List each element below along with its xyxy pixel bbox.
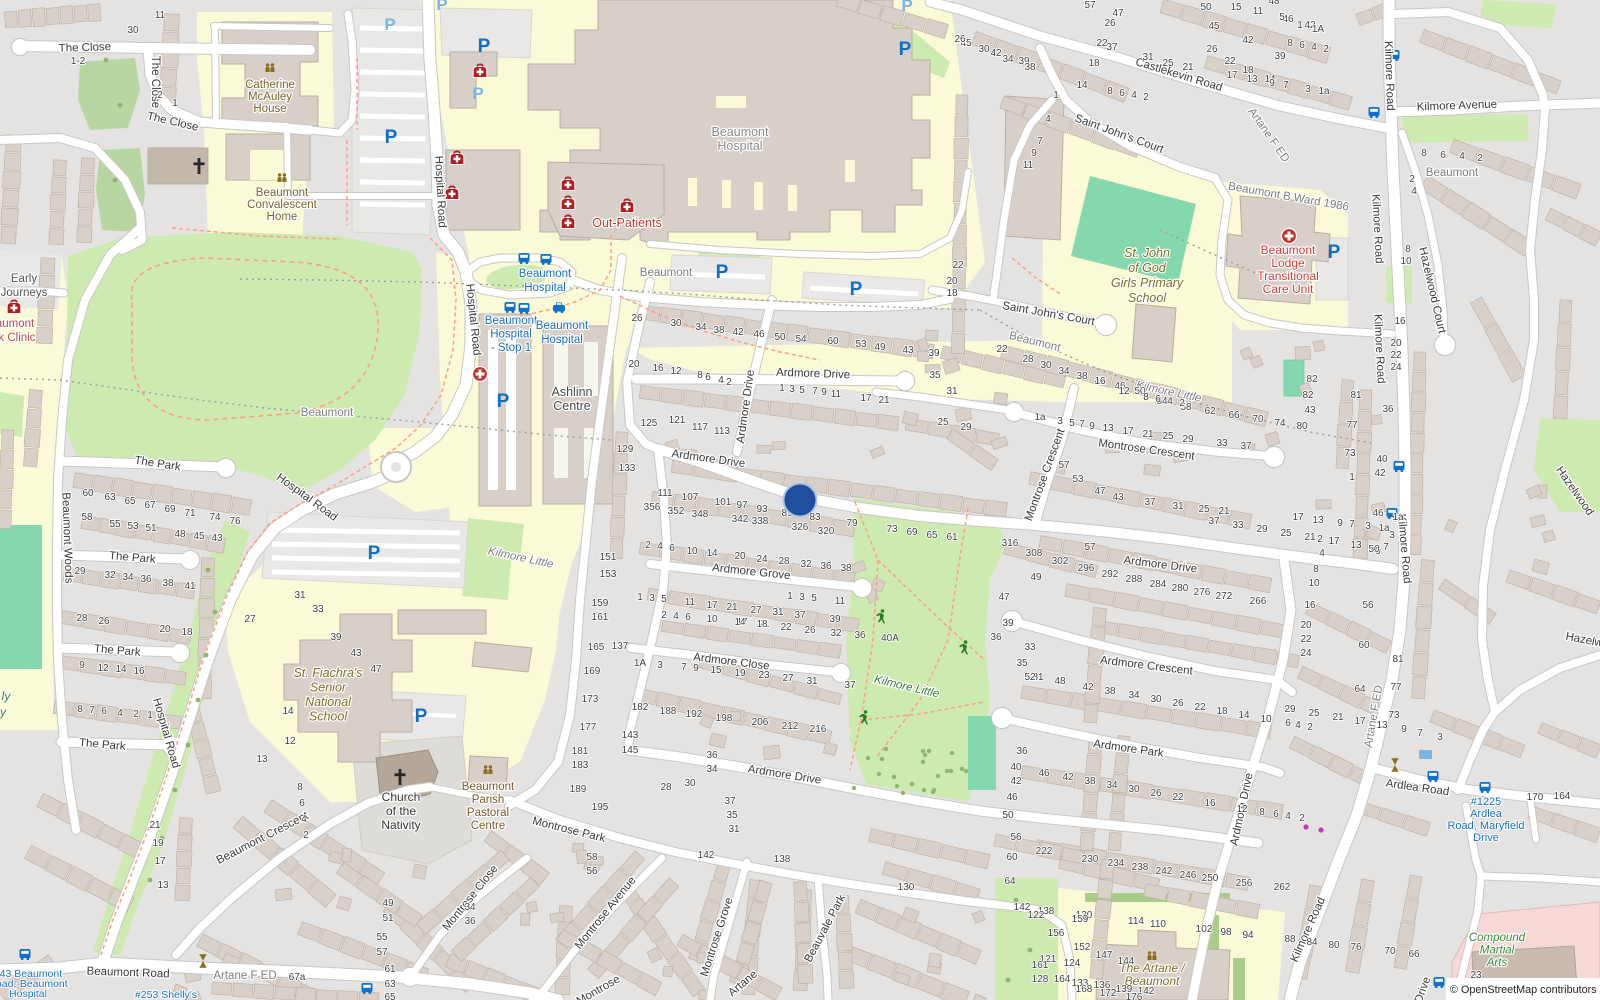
svg-text:47: 47 [1094,486,1106,497]
svg-text:17: 17 [1354,716,1366,727]
svg-text:16: 16 [1394,316,1406,327]
svg-text:34: 34 [1128,690,1140,701]
svg-text:8: 8 [1313,564,1319,575]
svg-text:Road, Maryfield: Road, Maryfield [1447,820,1524,832]
svg-text:11: 11 [835,596,846,607]
svg-text:6: 6 [299,798,305,809]
svg-text:26: 26 [954,34,966,45]
svg-text:45: 45 [193,531,205,542]
svg-text:192: 192 [686,709,703,720]
svg-text:188: 188 [660,706,677,717]
svg-text:16: 16 [1204,798,1216,809]
svg-text:The Close: The Close [58,41,111,55]
svg-text:22: 22 [780,622,792,633]
svg-text:183: 183 [572,760,589,771]
svg-text:1: 1 [1297,20,1303,31]
svg-text:36: 36 [820,561,832,572]
svg-text:37: 37 [1208,516,1220,527]
svg-text:39: 39 [928,348,940,359]
svg-text:26: 26 [1104,18,1116,29]
svg-text:181: 181 [572,746,589,757]
svg-text:21: 21 [1304,532,1316,543]
svg-text:10: 10 [1400,256,1412,267]
svg-text:1: 1 [172,98,178,109]
svg-text:© OpenStreetMap contributors: © OpenStreetMap contributors [1450,984,1597,996]
svg-text:1a: 1a [1392,512,1404,523]
svg-text:38: 38 [1104,686,1116,697]
svg-text:8: 8 [1405,244,1411,255]
svg-text:1A: 1A [634,658,647,669]
svg-text:Hospital: Hospital [9,988,47,1000]
svg-text:31: 31 [1172,501,1184,512]
svg-text:42: 42 [1082,682,1094,693]
svg-text:34: 34 [1058,366,1070,377]
svg-text:4: 4 [657,541,663,552]
svg-text:272: 272 [1216,591,1233,602]
svg-text:Lodge: Lodge [1271,256,1305,270]
svg-text:164: 164 [1054,974,1071,985]
svg-text:Beaumont: Beaumont [640,267,693,279]
svg-text:18: 18 [946,288,958,299]
svg-text:National: National [305,695,352,709]
svg-text:43: 43 [1112,492,1124,503]
svg-text:97: 97 [736,500,748,511]
svg-text:38: 38 [713,325,725,336]
svg-text:73: 73 [886,524,898,535]
svg-text:P: P [899,39,912,60]
svg-text:38: 38 [162,578,174,589]
svg-text:80: 80 [1328,940,1340,951]
svg-text:33: 33 [1216,438,1228,449]
svg-text:38: 38 [840,563,852,574]
svg-text:P: P [497,391,510,412]
svg-text:238: 238 [1132,862,1149,873]
svg-text:5: 5 [811,593,817,604]
svg-text:43: 43 [211,533,223,544]
svg-text:21: 21 [1182,62,1194,73]
svg-text:13: 13 [1312,515,1324,526]
svg-text:Church: Church [382,790,421,804]
svg-text:Drive: Drive [1473,832,1499,844]
svg-text:338: 338 [752,516,769,527]
svg-text:22: 22 [952,260,964,271]
svg-text:125: 125 [641,418,658,429]
svg-text:40A: 40A [881,633,899,644]
svg-text:81: 81 [1350,390,1362,401]
svg-text:3: 3 [1305,84,1311,95]
svg-text:Nativity: Nativity [381,818,420,832]
svg-text:206: 206 [752,717,769,728]
svg-text:50: 50 [1002,810,1014,821]
svg-text:54: 54 [795,334,807,345]
svg-text:51: 51 [145,523,157,534]
svg-text:P: P [1328,242,1341,263]
svg-text:69: 69 [164,504,176,515]
svg-text:22: 22 [1194,702,1206,713]
svg-text:12: 12 [1236,804,1248,815]
svg-text:33: 33 [1024,642,1036,653]
svg-text:1: 1 [147,710,153,721]
svg-text:34: 34 [706,764,718,775]
svg-text:Hospital: Hospital [490,329,532,341]
svg-text:80: 80 [1296,421,1308,432]
svg-text:Beaumont: Beaumont [256,187,309,199]
svg-text:of the: of the [386,804,416,818]
svg-text:Ardlea: Ardlea [1470,808,1503,820]
svg-text:2: 2 [645,540,651,551]
svg-text:37: 37 [724,796,736,807]
svg-text:8: 8 [297,782,303,793]
svg-text:4: 4 [718,375,724,386]
svg-text:1a: 1a [1318,86,1330,97]
svg-text:10: 10 [706,614,718,625]
svg-text:P: P [478,36,491,57]
svg-text:- Stop 1: - Stop 1 [491,342,531,354]
svg-text:84: 84 [1306,937,1318,948]
svg-text:31: 31 [772,607,784,618]
svg-text:11: 11 [831,389,842,400]
svg-text:28: 28 [76,613,88,624]
svg-text:14: 14 [1238,710,1250,721]
svg-text:5: 5 [1069,418,1075,429]
svg-text:3: 3 [1437,732,1443,743]
svg-text:1: 1 [779,383,785,394]
svg-text:133: 133 [619,463,636,474]
svg-text:13: 13 [157,880,169,891]
svg-text:26: 26 [631,313,643,324]
svg-text:Beaumont: Beaumont [519,268,572,280]
svg-text:6: 6 [1155,394,1161,405]
svg-text:94: 94 [1242,930,1254,941]
svg-text:2: 2 [1307,722,1313,733]
svg-text:292: 292 [1102,569,1119,580]
svg-text:216: 216 [810,724,827,735]
svg-text:26: 26 [1172,698,1184,709]
svg-text:Hospital: Hospital [524,282,566,294]
svg-text:356: 356 [644,502,661,513]
svg-text:57: 57 [1084,0,1096,11]
svg-text:8: 8 [1143,392,1149,403]
svg-text:P: P [415,706,428,727]
svg-text:53: 53 [855,339,867,350]
svg-text:22: 22 [1300,634,1312,645]
svg-text:14: 14 [734,617,746,628]
svg-text:39: 39 [330,632,342,643]
svg-text:1-2: 1-2 [71,56,86,67]
svg-text:6: 6 [1285,718,1291,729]
svg-text:8: 8 [1259,807,1265,818]
svg-text:15: 15 [1230,2,1242,13]
svg-text:#1225: #1225 [1471,796,1502,808]
svg-text:246: 246 [1180,870,1197,881]
svg-text:159: 159 [592,598,609,609]
svg-text:64: 64 [1354,684,1366,695]
svg-text:32: 32 [800,559,812,570]
svg-text:Pastoral: Pastoral [467,807,509,819]
svg-text:7: 7 [681,662,687,673]
svg-text:6: 6 [1119,88,1125,99]
svg-text:320: 320 [818,526,835,537]
svg-text:11: 11 [1023,160,1034,171]
svg-text:20: 20 [628,359,640,370]
svg-text:74: 74 [1274,418,1286,429]
svg-text:177: 177 [580,722,597,733]
svg-text:36: 36 [854,630,866,641]
svg-text:37: 37 [794,610,806,621]
svg-text:12: 12 [1118,386,1130,397]
svg-text:76: 76 [1350,942,1362,953]
svg-text:77: 77 [1390,682,1402,693]
svg-text:4: 4 [1131,90,1137,101]
svg-text:30: 30 [978,44,990,55]
svg-text:38: 38 [1076,371,1088,382]
svg-text:2: 2 [1143,92,1149,103]
svg-text:36: 36 [990,632,1002,643]
svg-text:284: 284 [1150,579,1167,590]
svg-text:20: 20 [159,624,171,635]
svg-text:Beaumont: Beaumont [536,320,589,332]
svg-text:13: 13 [1376,720,1388,731]
svg-text:5: 5 [1279,12,1285,23]
svg-text:256: 256 [1236,878,1253,889]
svg-text:18: 18 [181,627,193,638]
svg-text:70: 70 [1252,414,1264,425]
svg-text:31: 31 [1142,52,1154,63]
svg-text:57: 57 [376,947,388,958]
svg-text:Martial: Martial [1480,945,1515,957]
svg-text:28: 28 [660,782,672,793]
svg-text:22: 22 [1390,350,1402,361]
svg-text:11: 11 [155,10,166,21]
svg-text:3: 3 [799,592,805,603]
svg-text:12: 12 [284,736,296,747]
svg-text:9: 9 [693,663,699,674]
svg-text:6: 6 [1273,809,1279,820]
svg-text:37: 37 [844,680,856,691]
svg-text:28: 28 [778,556,790,567]
svg-text:6: 6 [685,612,691,623]
svg-text:29: 29 [1284,704,1296,715]
svg-text:326: 326 [792,522,809,533]
svg-text:77: 77 [1346,420,1358,431]
svg-text:4: 4 [1045,114,1051,125]
svg-text:52: 52 [1024,672,1036,683]
svg-text:21: 21 [149,820,161,831]
svg-text:9: 9 [79,660,85,671]
svg-text:16: 16 [1094,376,1106,387]
svg-text:1: 1 [787,591,793,602]
svg-text:34: 34 [695,322,707,333]
svg-text:60: 60 [827,336,839,347]
svg-text:48: 48 [1054,676,1066,687]
svg-text:10: 10 [1308,578,1320,589]
svg-text:3: 3 [1389,530,1395,541]
svg-text:7: 7 [1283,80,1289,91]
svg-text:4: 4 [673,611,679,622]
svg-text:110: 110 [1150,919,1166,930]
svg-text:159: 159 [1072,914,1089,925]
svg-text:53: 53 [127,521,139,532]
svg-text:7: 7 [1037,136,1043,147]
svg-text:13: 13 [1350,540,1362,551]
svg-text:14: 14 [115,664,127,675]
svg-text:50: 50 [1368,544,1380,555]
svg-text:4: 4 [1319,548,1325,559]
svg-text:32: 32 [830,628,842,639]
svg-text:3: 3 [1365,521,1371,532]
svg-text:18: 18 [1088,58,1100,69]
svg-text:73: 73 [1388,710,1400,721]
svg-text:17: 17 [1328,536,1340,547]
svg-text:21: 21 [1142,429,1154,440]
svg-text:2: 2 [303,830,309,841]
svg-text:19: 19 [734,668,746,679]
svg-text:7: 7 [1079,419,1085,430]
svg-text:20: 20 [1390,338,1402,349]
svg-text:P: P [384,15,395,34]
svg-text:Artane F ED: Artane F ED [213,970,276,982]
svg-text:ly: ly [2,689,12,703]
svg-text:20: 20 [734,551,746,562]
svg-text:17: 17 [860,393,872,404]
svg-text:16: 16 [1304,600,1316,611]
svg-text:79: 79 [846,518,858,529]
svg-text:Hospital: Hospital [717,139,762,153]
svg-text:36: 36 [140,574,152,585]
svg-text:7: 7 [1383,542,1389,553]
svg-text:7: 7 [89,705,95,716]
svg-text:Girls Primary: Girls Primary [1111,276,1184,290]
svg-text:26: 26 [1206,44,1218,55]
svg-text:1: 1 [1349,472,1355,483]
svg-text:144: 144 [1118,956,1135,967]
svg-text:Transitional: Transitional [1257,269,1319,283]
svg-text:128: 128 [1032,974,1049,985]
svg-text:76: 76 [229,516,241,527]
svg-text:9: 9 [1269,78,1275,89]
svg-text:4: 4 [301,814,307,825]
svg-text:6: 6 [705,372,711,383]
svg-text:4: 4 [117,708,123,719]
svg-text:56: 56 [586,866,598,877]
svg-text:55: 55 [376,932,388,943]
svg-text:2: 2 [1179,398,1185,409]
svg-text:29: 29 [960,422,972,433]
svg-text:5: 5 [799,385,805,396]
svg-text:71: 71 [184,508,196,519]
svg-text:17: 17 [1122,426,1134,437]
svg-text:176: 176 [1126,992,1143,1000]
svg-text:48: 48 [174,529,186,540]
svg-text:46: 46 [1038,768,1050,779]
svg-text:9: 9 [1401,724,1407,735]
svg-text:39: 39 [829,614,841,625]
svg-text:21: 21 [1332,712,1344,723]
svg-text:242: 242 [1156,866,1173,877]
svg-text:137: 137 [612,641,629,652]
svg-text:33: 33 [1232,520,1244,531]
svg-text:3: 3 [657,660,663,671]
svg-text:8: 8 [1107,86,1113,97]
svg-text:11: 11 [1253,6,1264,17]
svg-text:18: 18 [1216,706,1228,717]
svg-text:32: 32 [104,570,116,581]
svg-text:49: 49 [382,898,394,909]
svg-text:64: 64 [1004,876,1016,887]
svg-text:67a: 67a [289,972,306,983]
svg-text:42: 42 [1062,772,1074,783]
svg-text:168: 168 [1076,984,1093,995]
svg-text:58: 58 [81,512,93,523]
svg-text:17: 17 [1226,70,1238,81]
svg-text:Beaumont: Beaumont [485,315,538,327]
svg-text:39: 39 [1274,51,1286,62]
svg-text:4: 4 [1295,720,1301,731]
svg-text:74: 74 [209,512,221,523]
svg-text:38: 38 [1024,62,1036,73]
svg-text:82: 82 [1302,390,1314,401]
svg-text:4: 4 [1459,151,1465,162]
svg-text:65: 65 [124,496,136,507]
svg-text:46: 46 [1372,508,1384,519]
svg-text:60: 60 [82,488,94,499]
svg-text:47: 47 [1112,8,1124,19]
svg-text:20: 20 [1300,620,1312,631]
svg-text:18: 18 [756,619,768,630]
svg-text:30: 30 [1128,784,1140,795]
svg-text:152: 152 [1074,942,1091,953]
svg-text:6: 6 [669,543,675,554]
svg-text:2: 2 [157,90,163,101]
svg-text:82: 82 [1306,374,1318,385]
svg-text:House: House [253,103,286,115]
svg-text:189: 189 [570,784,587,795]
svg-text:308: 308 [1026,548,1043,559]
svg-text:26: 26 [804,625,816,636]
svg-text:27: 27 [750,605,762,616]
svg-text:Parish: Parish [472,794,505,806]
svg-text:School: School [1128,291,1167,305]
svg-text:Out-Patients: Out-Patients [592,216,661,230]
svg-text:25: 25 [1198,504,1210,515]
svg-text:3: 3 [649,593,655,604]
svg-text:51: 51 [382,913,394,924]
svg-text:Beaumont: Beaumont [0,318,35,330]
svg-text:101: 101 [715,497,732,508]
svg-text:42: 42 [732,327,744,338]
svg-text:8: 8 [1287,38,1293,49]
svg-text:30: 30 [127,25,139,36]
svg-text:of God: of God [1128,261,1167,275]
svg-text:35: 35 [929,370,941,381]
svg-text:288: 288 [1126,574,1143,585]
svg-text:66: 66 [1408,949,1420,960]
svg-text:23: 23 [758,670,770,681]
svg-text:222: 222 [1036,846,1053,857]
svg-text:36: 36 [464,916,476,927]
svg-text:P: P [368,543,381,564]
svg-text:37: 37 [1240,441,1252,452]
svg-text:17: 17 [154,856,166,867]
svg-text:69: 69 [906,527,918,538]
svg-text:8: 8 [1421,148,1427,159]
svg-text:81: 81 [1392,654,1404,665]
svg-text:65: 65 [926,530,938,541]
svg-text:2: 2 [726,377,732,388]
svg-text:352: 352 [668,506,685,517]
svg-text:Beaumont: Beaumont [462,781,515,793]
svg-text:172: 172 [1100,988,1117,999]
